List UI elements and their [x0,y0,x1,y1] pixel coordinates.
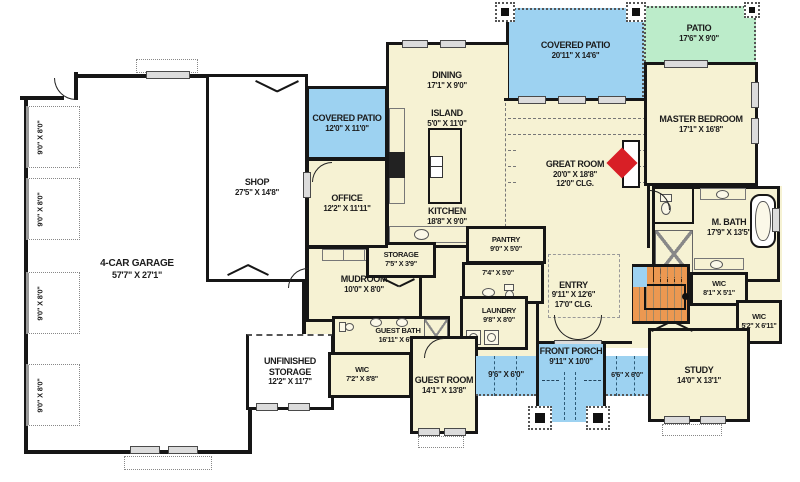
beam-line [508,118,646,119]
porch-wing-right: 6'6" X 6'0" [606,356,648,396]
sink-icon [370,318,382,327]
room-wic-guest: WIC 7'2" X 8'8" [328,352,412,398]
window [558,96,586,104]
garage-door-size: 9'0" X 8'0" [26,178,54,240]
porch-wing-left: 9'6" X 6'0" [476,356,536,396]
porch-column-line [616,356,617,396]
double-door-icon [228,262,268,276]
stair-landing [633,267,647,287]
stair-rail [644,284,686,310]
patio-rear: PATIO 17'6" X 9'0" [644,6,756,64]
window [444,428,466,436]
porch-column-line [634,356,635,396]
garage-door-size: 9'0" X 8'0" [26,272,54,334]
bathtub-icon [755,201,771,241]
floor-plan: 4-CAR GARAGE 57'7" X 27'1" 9'0" X 8'0" 9… [0,0,800,482]
room-master-bedroom: MASTER BEDROOM 17'1" X 16'8" [644,62,758,186]
wall-notch [252,410,310,458]
porch-post [495,2,515,22]
patio-covered-large: COVERED PATIO 20'11" X 14'6" [506,8,644,100]
dryer-icon [487,333,496,342]
window [146,71,190,79]
dimension-line [584,380,601,381]
window [288,403,310,411]
stoop [418,436,464,448]
porch-column-line [494,356,495,396]
window [440,40,466,48]
garage-door-size: 9'0" X 8'0" [26,364,54,426]
room-pantry: PANTRY 9'0" X 5'0" [466,226,546,264]
stair-rail-end [682,293,689,300]
window [664,416,690,424]
beam-line [508,134,646,135]
window [772,208,780,232]
double-door-icon [384,278,414,290]
window [518,96,546,104]
porch-post [586,406,610,430]
window [303,172,311,198]
window [598,96,626,104]
window [751,82,759,108]
window [751,118,759,144]
wall-segment [20,96,64,100]
sliding-door [664,60,708,68]
room-shop: SHOP 27'5" X 14'8" [206,74,308,282]
window [418,428,440,436]
sink-icon [716,190,729,199]
porch-post [626,2,646,22]
room-label: 4-CAR GARAGE [100,258,174,270]
window [700,416,726,424]
porch-post [528,406,552,430]
ceiling-break-line [548,254,620,318]
double-door-icon [256,80,298,96]
room-guest-room: GUEST ROOM 14'1" X 13'8" [410,336,478,434]
garage-door-size: 9'0" X 8'0" [26,106,54,168]
patio-covered-small: COVERED PATIO 12'0" X 11'0" [306,86,388,160]
island-sink-divider [430,166,443,167]
window [256,403,278,411]
range-icon [389,152,405,178]
window [130,446,160,454]
window [168,446,198,454]
sink-icon [710,260,723,269]
stoop [124,456,212,470]
sink-icon [396,318,408,327]
island-sink-icon [430,156,443,178]
window [402,40,428,48]
room-unfinished-storage: UNFINISHED STORAGE 12'2" X 11'7" [246,334,334,410]
stoop [662,424,722,436]
porch-column-line [516,356,517,396]
wall-segment [248,406,252,452]
dimension-line [542,380,559,381]
toilet-icon [345,323,354,331]
room-study: STUDY 14'0" X 13'1" [648,328,750,422]
sink-icon [414,229,429,240]
porch-post [744,2,760,18]
porch-steps [564,372,576,420]
